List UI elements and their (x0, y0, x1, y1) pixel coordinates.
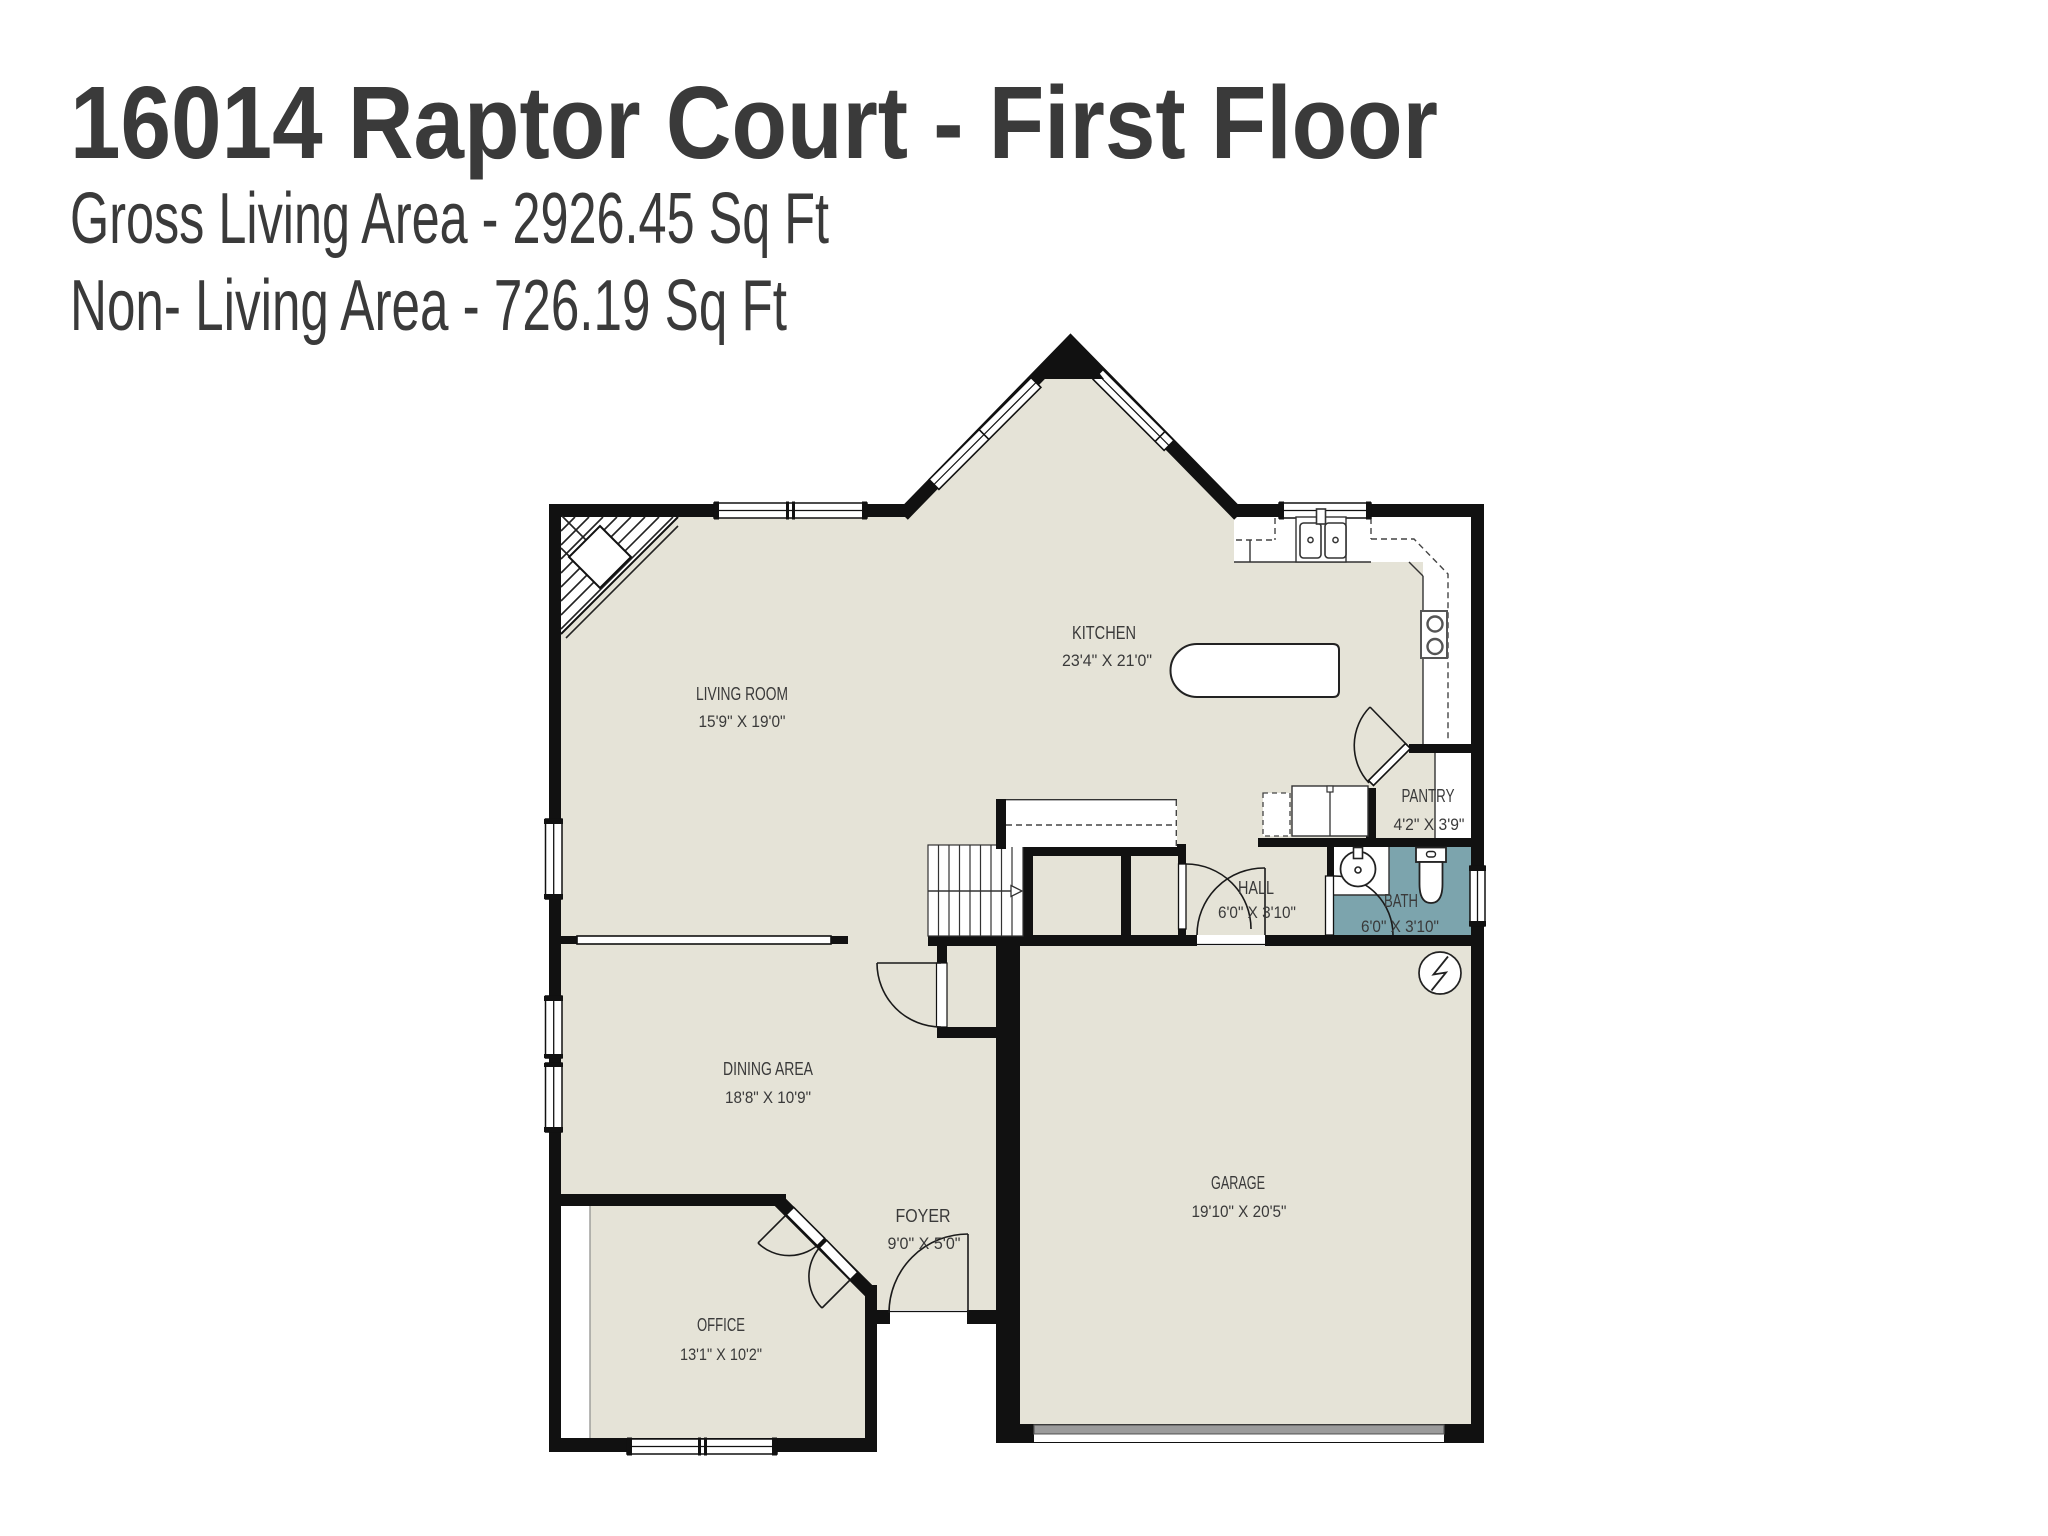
svg-text:BATH: BATH (1384, 891, 1418, 911)
svg-text:6'0" X 3'10": 6'0" X 3'10" (1218, 904, 1296, 922)
svg-text:GARAGE: GARAGE (1211, 1173, 1265, 1193)
svg-text:LIVING ROOM: LIVING ROOM (696, 684, 788, 704)
svg-text:OFFICE: OFFICE (697, 1315, 745, 1335)
svg-text:KITCHEN: KITCHEN (1072, 623, 1136, 643)
svg-text:Gross Living Area - 2926.45 Sq: Gross Living Area - 2926.45 Sq Ft (70, 179, 829, 259)
svg-text:13'1" X 10'2": 13'1" X 10'2" (680, 1346, 762, 1364)
svg-text:15'9" X 19'0": 15'9" X 19'0" (699, 713, 786, 731)
svg-text:23'4" X 21'0": 23'4" X 21'0" (1062, 652, 1152, 670)
svg-text:PANTRY: PANTRY (1402, 786, 1455, 806)
svg-text:FOYER: FOYER (896, 1206, 951, 1226)
svg-text:19'10" X 20'5": 19'10" X 20'5" (1192, 1203, 1287, 1221)
svg-text:16014 Raptor Court - First Flo: 16014 Raptor Court - First Floor (70, 65, 1438, 180)
svg-text:DINING AREA: DINING AREA (723, 1059, 813, 1079)
svg-text:9'0" X 5'0": 9'0" X 5'0" (888, 1235, 961, 1253)
svg-text:18'8" X 10'9": 18'8" X 10'9" (725, 1089, 811, 1107)
svg-text:HALL: HALL (1238, 878, 1274, 898)
svg-text:4'2" X 3'9": 4'2" X 3'9" (1394, 816, 1465, 834)
svg-text:6'0" X 3'10": 6'0" X 3'10" (1361, 918, 1439, 936)
svg-text:Non- Living Area - 726.19 Sq F: Non- Living Area - 726.19 Sq Ft (70, 266, 787, 346)
